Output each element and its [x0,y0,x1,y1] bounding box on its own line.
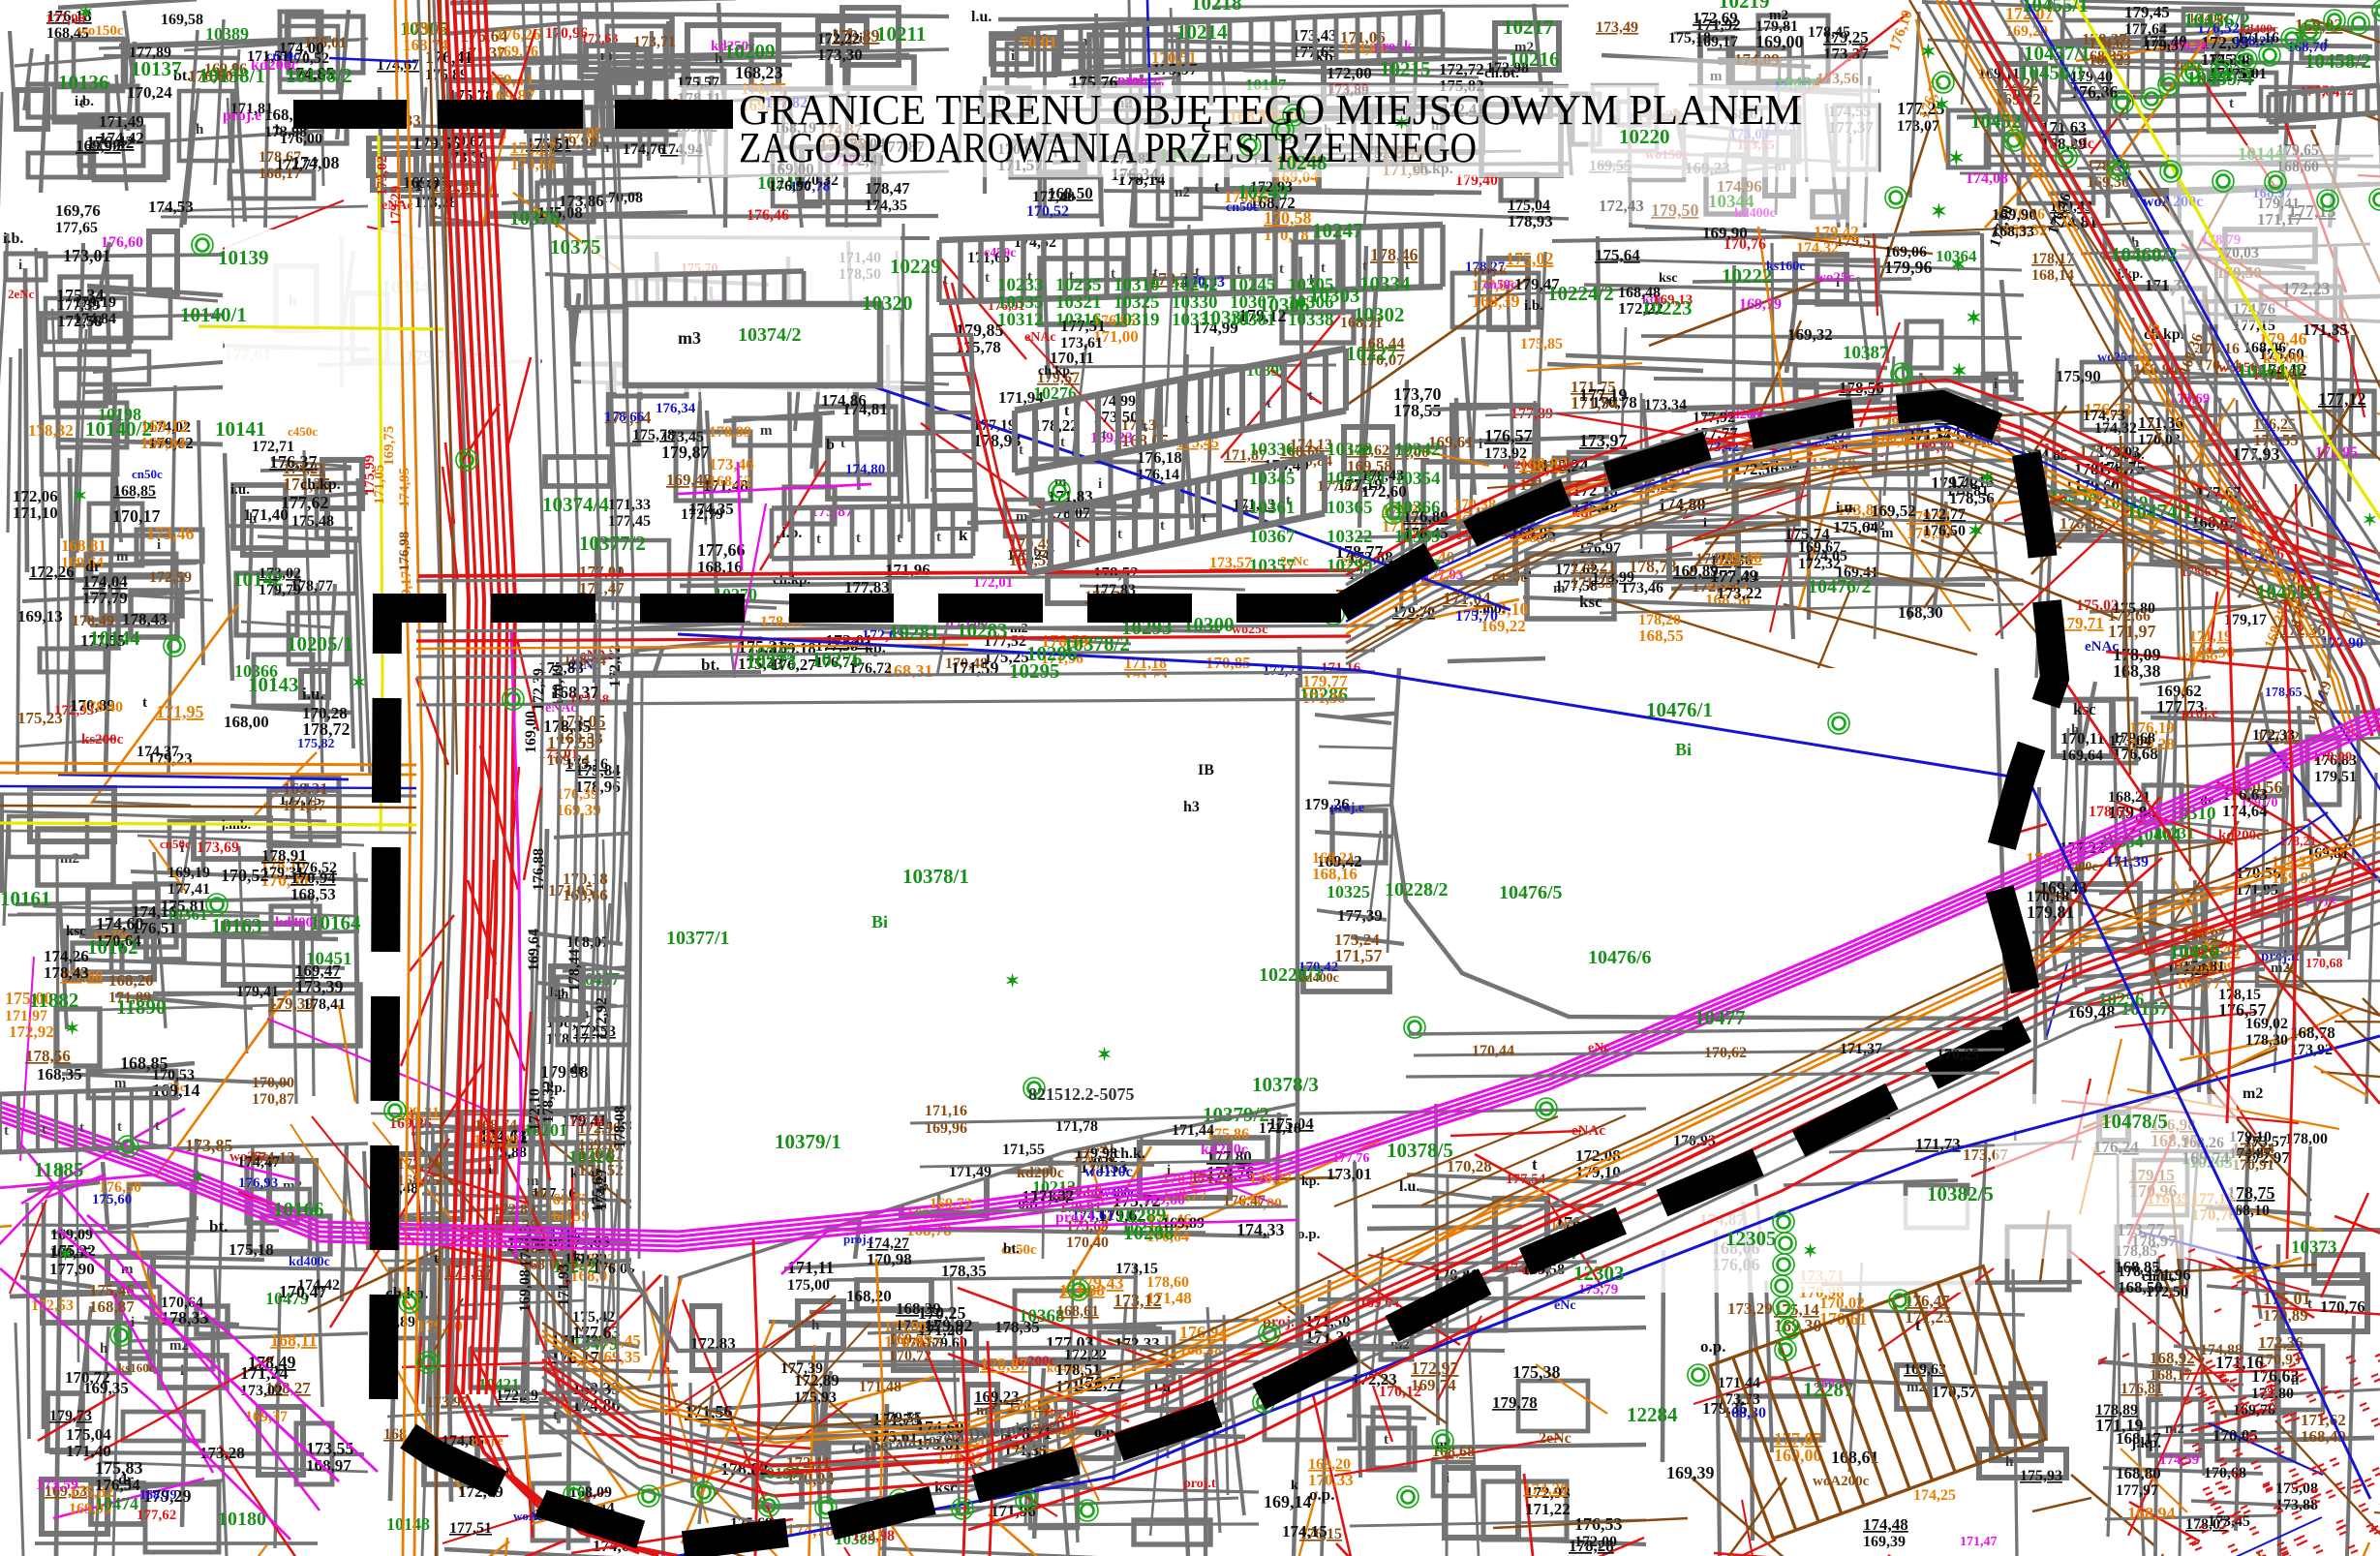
svg-text:t: t [776,532,780,547]
svg-text:10215: 10215 [1380,57,1431,80]
svg-text:dr: dr [569,1062,584,1078]
svg-text:ch.kp.: ch.kp. [300,476,341,493]
svg-text:10322: 10322 [1327,527,1373,547]
svg-text:169,76: 169,76 [55,201,101,220]
svg-text:171,96: 171,96 [885,561,931,579]
svg-text:t: t [897,531,901,546]
svg-text:10249: 10249 [1237,180,1289,203]
svg-text:10456/2: 10456/2 [2183,9,2250,32]
svg-text:175,82: 175,82 [297,737,335,751]
svg-text:10342: 10342 [1394,440,1441,460]
svg-text:cn50c: cn50c [1483,278,1516,292]
svg-text:171,44: 171,44 [1172,1122,1214,1139]
svg-text:179,84: 179,84 [403,18,451,38]
svg-text:10223: 10223 [1641,296,1693,320]
svg-text:171,16: 171,16 [925,1103,967,1119]
svg-text:178,41: 178,41 [303,996,346,1013]
svg-text:10228/2: 10228/2 [1385,879,1449,900]
svg-text:10227: 10227 [1346,342,1397,365]
svg-text:179,45: 179,45 [2124,3,2170,21]
svg-text:171,81: 171,81 [230,101,273,117]
svg-text:175,93: 175,93 [2020,1468,2062,1484]
svg-text:h: h [2005,1454,2014,1470]
svg-text:170,68: 170,68 [2204,1465,2246,1481]
svg-text:175,38: 175,38 [1512,1362,1561,1382]
svg-text:10138/1: 10138/1 [198,64,265,87]
svg-text:m3: m3 [678,328,701,348]
svg-text:168,59: 168,59 [544,1206,590,1225]
svg-text:175,16: 175,16 [565,756,608,773]
svg-text:proj.k: proj.k [1474,262,1508,277]
svg-text:10459/4: 10459/4 [2186,67,2253,90]
svg-text:179,34: 179,34 [2232,1141,2274,1157]
svg-text:171,00: 171,00 [1239,1196,1282,1212]
svg-text:kd400c: kd400c [289,1255,330,1269]
svg-text:10357: 10357 [1249,556,1296,576]
svg-text:175,34: 175,34 [56,286,105,305]
svg-text:t: t [1019,442,1023,458]
svg-text:178,45: 178,45 [1808,24,1850,41]
svg-text:10378/3: 10378/3 [1252,1073,1319,1096]
svg-text:170,49: 170,49 [550,664,566,707]
svg-text:o.p.: o.p. [1309,1485,1334,1504]
svg-text:✶: ✶ [1934,95,1950,116]
svg-text:174,33: 174,33 [1236,1220,1285,1239]
svg-text:10452: 10452 [1970,109,2022,133]
svg-text:169,00: 169,00 [1755,32,1804,51]
svg-text:2eNc: 2eNc [1539,1430,1571,1447]
svg-text:174,42: 174,42 [99,129,144,147]
svg-text:t: t [1308,388,1313,404]
svg-text:171,47: 171,47 [1960,1535,1998,1549]
svg-text:169,08: 169,08 [517,1269,534,1312]
svg-text:k: k [1291,1479,1298,1493]
svg-text:178,77: 178,77 [290,578,333,595]
svg-text:✶: ✶ [65,1019,79,1038]
svg-text:173,46: 173,46 [1621,580,1663,596]
svg-text:ks160c: ks160c [118,1360,155,1375]
svg-text:11882: 11882 [29,989,78,1012]
svg-text:10316: 10316 [1055,310,1102,330]
svg-text:t: t [1202,510,1206,526]
svg-text:177,39: 177,39 [780,1360,823,1377]
svg-text:168,23: 168,23 [735,63,783,82]
svg-text:170,12: 170,12 [1379,1384,1421,1400]
svg-text:170,51: 170,51 [1151,48,1197,67]
svg-text:169,32: 169,32 [1787,325,1833,344]
svg-text:175,02: 175,02 [1506,249,1554,268]
svg-text:10295: 10295 [1009,659,1060,683]
svg-text:10458/2: 10458/2 [2304,49,2371,73]
svg-text:✶: ✶ [1950,255,1967,276]
svg-text:10478/5: 10478/5 [2101,1110,2168,1133]
svg-text:177,65: 177,65 [55,220,98,236]
svg-text:✶: ✶ [1968,521,1984,542]
svg-text:10387: 10387 [1843,343,1889,363]
svg-text:✶: ✶ [1979,468,1996,489]
svg-text:10361: 10361 [167,905,208,924]
svg-text:✶: ✶ [1951,361,1968,382]
svg-text:t: t [856,531,861,546]
svg-text:172,79: 172,79 [681,506,723,523]
svg-text:i: i [1098,476,1102,492]
svg-text:172,77: 172,77 [1923,506,1966,523]
svg-text:169,39: 169,39 [1666,1463,1715,1482]
svg-text:169,60: 169,60 [1143,1192,1185,1208]
svg-text:b: b [275,123,283,138]
svg-text:h: h [100,1341,108,1357]
svg-text:172,00: 172,00 [1327,64,1372,82]
svg-text:10299: 10299 [1327,556,1373,576]
svg-text:169,76: 169,76 [496,44,538,60]
svg-text:l.u.: l.u. [971,9,992,25]
svg-text:t: t [4,1123,9,1139]
svg-text:t: t [1143,419,1147,435]
svg-text:t: t [1060,435,1065,450]
svg-text:10476/6: 10476/6 [1588,947,1652,968]
svg-text:176,98: 176,98 [397,532,412,571]
svg-text:174,84: 174,84 [74,311,116,327]
svg-text:173,22: 173,22 [1717,584,1762,602]
svg-text:10273: 10273 [746,650,797,673]
svg-text:170,91: 170,91 [2232,1157,2274,1174]
svg-text:176,57: 176,57 [1484,426,1533,445]
svg-text:173,29: 173,29 [1727,1299,1773,1318]
svg-text:176,50: 176,50 [1923,523,1966,539]
svg-text:i.u.: i.u. [1836,500,1856,516]
svg-text:174,05: 174,05 [1805,548,1847,564]
svg-text:t: t [2229,96,2234,111]
svg-text:178,93: 178,93 [1508,212,1553,230]
svg-text:170,52: 170,52 [221,866,269,885]
svg-text:i: i [1479,437,1482,452]
svg-text:i.u.: i.u. [230,482,250,498]
svg-text:168,00: 168,00 [224,713,269,731]
svg-text:169,19: 169,19 [168,865,210,881]
svg-text:178,56: 178,56 [25,1047,71,1065]
svg-text:171,57: 171,57 [1334,946,1383,965]
svg-text:178,47: 178,47 [865,179,910,198]
svg-text:✶: ✶ [73,486,87,505]
svg-text:168,39: 168,39 [1472,291,1520,311]
svg-text:170,87: 170,87 [252,1091,294,1108]
svg-text:170,28: 170,28 [1447,1157,1492,1175]
svg-text:10164: 10164 [310,911,361,934]
svg-text:168,30: 168,30 [1898,603,1943,622]
svg-text:10382/5: 10382/5 [1927,1182,1994,1205]
svg-text:173,15: 173,15 [1115,1261,1158,1277]
svg-text:t: t [1279,261,1284,277]
svg-text:174,37: 174,37 [137,744,179,760]
svg-text:Bi: Bi [1675,740,1692,759]
svg-text:177,12: 177,12 [2318,389,2366,409]
svg-text:176,00: 176,00 [280,131,322,147]
svg-text:170,86: 170,86 [510,155,556,173]
svg-text:171,93: 171,93 [556,1264,572,1306]
svg-text:kd200c: kd200c [2218,828,2263,843]
svg-text:174,15: 174,15 [1282,1522,1327,1541]
svg-text:t: t [1064,403,1070,419]
svg-text:10461/1: 10461/1 [2237,359,2304,382]
svg-text:10180: 10180 [218,1509,266,1530]
svg-text:10229: 10229 [890,255,941,278]
svg-text:172,33: 172,33 [1114,1334,1160,1353]
svg-text:171,23: 171,23 [1905,1307,1953,1327]
svg-text:174,88: 174,88 [2200,1342,2243,1358]
svg-text:168,94: 168,94 [2127,1504,2176,1523]
svg-text:174,53: 174,53 [148,198,194,216]
svg-text:172,29: 172,29 [496,1388,538,1404]
svg-text:168,52: 168,52 [709,473,751,490]
svg-text:174,76: 174,76 [623,141,665,158]
svg-text:173,02: 173,02 [375,156,390,196]
svg-text:170,98: 170,98 [867,1250,912,1268]
svg-text:✶: ✶ [1966,308,1982,329]
svg-text:171,48: 171,48 [859,1379,901,1395]
svg-text:✶: ✶ [2363,510,2377,530]
svg-text:169,64: 169,64 [526,929,542,971]
svg-text:10476/5: 10476/5 [1499,882,1563,903]
svg-text:10367: 10367 [1249,527,1296,547]
svg-text:t: t [1184,412,1189,427]
svg-text:t: t [1117,527,1122,542]
svg-text:10312: 10312 [997,310,1044,330]
svg-text:10222: 10222 [1722,264,1773,288]
svg-text:t: t [1102,427,1107,442]
svg-text:10216: 10216 [1509,47,1560,71]
svg-text:821512.2-5075: 821512.2-5075 [1028,1084,1135,1104]
svg-text:179,96: 179,96 [1884,258,1933,277]
svg-text:174,60: 174,60 [96,914,144,933]
svg-text:168,85: 168,85 [113,483,156,500]
svg-text:12305: 12305 [1725,1227,1777,1250]
svg-text:168,20: 168,20 [846,1287,892,1305]
svg-text:10359: 10359 [1394,527,1441,547]
svg-text:174,08: 174,08 [291,153,340,172]
svg-text:t: t [1226,404,1231,419]
svg-text:179,51: 179,51 [2314,769,2357,785]
svg-text:10144: 10144 [89,626,140,650]
svg-text:178,43: 178,43 [44,963,89,982]
svg-text:m: m [121,1262,134,1277]
svg-text:174,64: 174,64 [2222,802,2268,820]
svg-text:175,48: 175,48 [291,513,334,530]
svg-text:10336: 10336 [1249,440,1296,460]
svg-text:169,48: 169,48 [666,471,712,489]
svg-text:i: i [1994,377,1998,392]
svg-text:169,90: 169,90 [2189,643,2235,661]
svg-text:169,23: 169,23 [974,1388,1020,1406]
svg-text:10218: 10218 [1191,0,1242,15]
svg-text:171,37: 171,37 [1840,1041,1882,1057]
svg-text:173,46: 173,46 [709,455,754,473]
svg-text:173,45: 173,45 [2208,1513,2250,1530]
svg-text:11885: 11885 [34,1158,83,1181]
svg-text:169,88: 169,88 [1717,548,1762,566]
svg-text:171,19: 171,19 [2095,1416,2144,1435]
svg-text:171,97: 171,97 [2108,622,2156,641]
svg-text:10137: 10137 [131,57,182,80]
svg-text:176,52: 176,52 [294,860,337,876]
svg-text:10138/2: 10138/2 [286,64,352,87]
svg-text:173,59: 173,59 [36,1477,78,1493]
svg-text:171,32: 171,32 [1031,1188,1074,1205]
svg-text:10374/4: 10374/4 [542,493,609,516]
svg-text:169,35: 169,35 [83,1379,129,1397]
svg-text:10276: 10276 [811,648,863,671]
svg-text:169,00: 169,00 [523,711,539,753]
svg-text:173,39: 173,39 [295,977,344,996]
svg-text:171,92: 171,92 [1695,15,1741,34]
svg-text:10378/2: 10378/2 [1063,632,1130,656]
svg-text:proj.e: proj.e [1330,801,1364,815]
svg-text:169,02: 169,02 [2245,1016,2288,1032]
svg-text:177,63: 177,63 [572,1323,621,1342]
svg-text:10389: 10389 [205,24,249,44]
svg-text:10456/1: 10456/1 [2019,61,2086,84]
svg-text:t: t [155,1118,160,1134]
svg-text:t: t [1384,1432,1388,1448]
svg-text:10162: 10162 [87,935,138,959]
svg-text:178,17: 178,17 [2031,251,2074,267]
svg-text:175,00: 175,00 [787,1277,830,1294]
svg-text:✶: ✶ [58,1244,73,1264]
svg-text:10340: 10340 [1327,440,1373,460]
svg-text:10209: 10209 [724,40,776,63]
svg-text:178,65: 178,65 [2265,686,2303,700]
svg-text:j.kp.: j.kp. [2130,1435,2161,1451]
svg-text:168,87: 168,87 [1519,454,1568,473]
svg-text:✶: ✶ [1803,1241,1817,1261]
svg-text:168,20: 168,20 [108,971,154,990]
svg-text:t: t [1405,258,1410,273]
svg-text:176,50: 176,50 [99,1179,141,1196]
svg-text:173,46: 173,46 [146,524,195,543]
svg-text:174,20: 174,20 [1523,1480,1569,1498]
svg-text:10320: 10320 [862,291,913,315]
svg-text:168,35: 168,35 [37,1065,82,1083]
svg-text:168,80: 168,80 [2116,1464,2161,1482]
svg-text:171,96: 171,96 [2146,1266,2191,1284]
svg-text:10281: 10281 [889,621,940,644]
svg-text:bt.: bt. [209,1217,228,1236]
svg-text:173,01: 173,01 [1327,1165,1372,1183]
svg-text:171,05: 171,05 [372,465,387,504]
svg-text:176,93: 176,93 [238,1175,278,1191]
svg-text:10460/2: 10460/2 [2111,243,2178,266]
svg-text:174,32: 174,32 [1796,240,1839,257]
svg-text:179,37: 179,37 [2144,38,2186,54]
svg-text:h3: h3 [1183,799,1200,815]
svg-text:Bi: Bi [871,912,888,931]
svg-text:10224/2: 10224/2 [1547,282,1614,305]
svg-text:169,58: 169,58 [161,12,203,28]
svg-text:10148: 10148 [386,1514,430,1534]
svg-text:174,13: 174,13 [250,1148,295,1167]
svg-text:171,26: 171,26 [1191,1171,1234,1187]
svg-text:175,23: 175,23 [17,709,63,727]
svg-text:173,28: 173,28 [199,1444,245,1462]
svg-text:i.u.: i.u. [302,685,324,703]
svg-text:178,63: 178,63 [2181,565,2218,580]
svg-text:10476/1: 10476/1 [1646,698,1713,721]
svg-text:179,29: 179,29 [388,186,404,226]
svg-text:177,62: 177,62 [137,1508,176,1523]
svg-text:10163: 10163 [211,914,262,937]
svg-text:ksc: ksc [66,924,86,939]
svg-text:10377/1: 10377/1 [666,928,730,949]
svg-text:h: h [196,122,204,137]
svg-text:178,56: 178,56 [1949,489,1995,507]
svg-text:10420: 10420 [2169,940,2220,963]
svg-text:171,18: 171,18 [1259,1120,1301,1137]
svg-text:168,50: 168,50 [1048,184,1093,202]
svg-text:170,76: 170,76 [2320,1297,2365,1316]
svg-text:i.b.: i.b. [1524,298,1543,314]
svg-text:170,11: 170,11 [1050,349,1094,367]
svg-text:174,73: 174,73 [2083,408,2125,424]
svg-text:✶: ✶ [1920,42,1937,63]
svg-text:171,10: 171,10 [13,503,58,522]
svg-text:177,79: 177,79 [82,589,128,607]
svg-text:169,13: 169,13 [17,607,63,625]
svg-text:173,30: 173,30 [817,46,863,64]
svg-text:168,78: 168,78 [2290,1023,2335,1042]
svg-text:dr: dr [118,1472,134,1488]
svg-text:m: m [116,549,129,564]
svg-text:proj.t: proj.t [1183,1477,1216,1491]
svg-text:10373: 10373 [2291,1237,2337,1258]
svg-text:168,92: 168,92 [2150,1349,2195,1367]
svg-text:kp.: kp. [1301,1175,1320,1189]
svg-text:t: t [1266,396,1271,412]
svg-text:169,77: 169,77 [2176,974,2221,992]
svg-text:173,85: 173,85 [185,1136,233,1155]
svg-text:172,22: 172,22 [607,645,624,687]
svg-text:168,17: 168,17 [2150,1367,2192,1384]
svg-text:10219: 10219 [1719,0,1770,13]
svg-text:10331: 10331 [1172,310,1218,330]
svg-text:✶: ✶ [191,1168,205,1187]
svg-text:12284: 12284 [1627,1403,1678,1426]
svg-text:10476/2: 10476/2 [1808,576,1872,597]
svg-text:10455/1: 10455/1 [2022,0,2089,16]
svg-text:o.p.: o.p. [1700,1337,1725,1356]
svg-text:✶: ✶ [1005,971,1020,991]
svg-text:170,17: 170,17 [112,506,161,526]
svg-text:175,90: 175,90 [2056,367,2101,385]
svg-text:t: t [1214,179,1220,196]
svg-text:175,93: 175,93 [794,1389,837,1406]
svg-text:178,40: 178,40 [80,699,123,716]
svg-text:10166: 10166 [273,1198,324,1221]
svg-text:t: t [1160,518,1165,534]
svg-text:m2: m2 [2243,1085,2263,1102]
svg-text:177,51: 177,51 [414,176,460,195]
svg-text:174,48: 174,48 [1863,1515,1908,1534]
svg-text:173,69: 173,69 [197,839,239,856]
svg-text:175,74: 175,74 [1785,525,1830,543]
svg-text:10143: 10143 [248,673,299,696]
svg-text:174,35: 174,35 [865,198,907,214]
svg-text:175,78: 175,78 [632,427,675,443]
svg-text:10141: 10141 [215,417,266,441]
svg-text:kd250c: kd250c [1201,1142,1248,1158]
svg-text:170,24: 170,24 [127,83,172,102]
svg-text:170,58: 170,58 [1264,208,1312,228]
svg-text:172,97: 172,97 [1411,1358,1459,1378]
svg-text:175,85: 175,85 [1520,336,1563,352]
